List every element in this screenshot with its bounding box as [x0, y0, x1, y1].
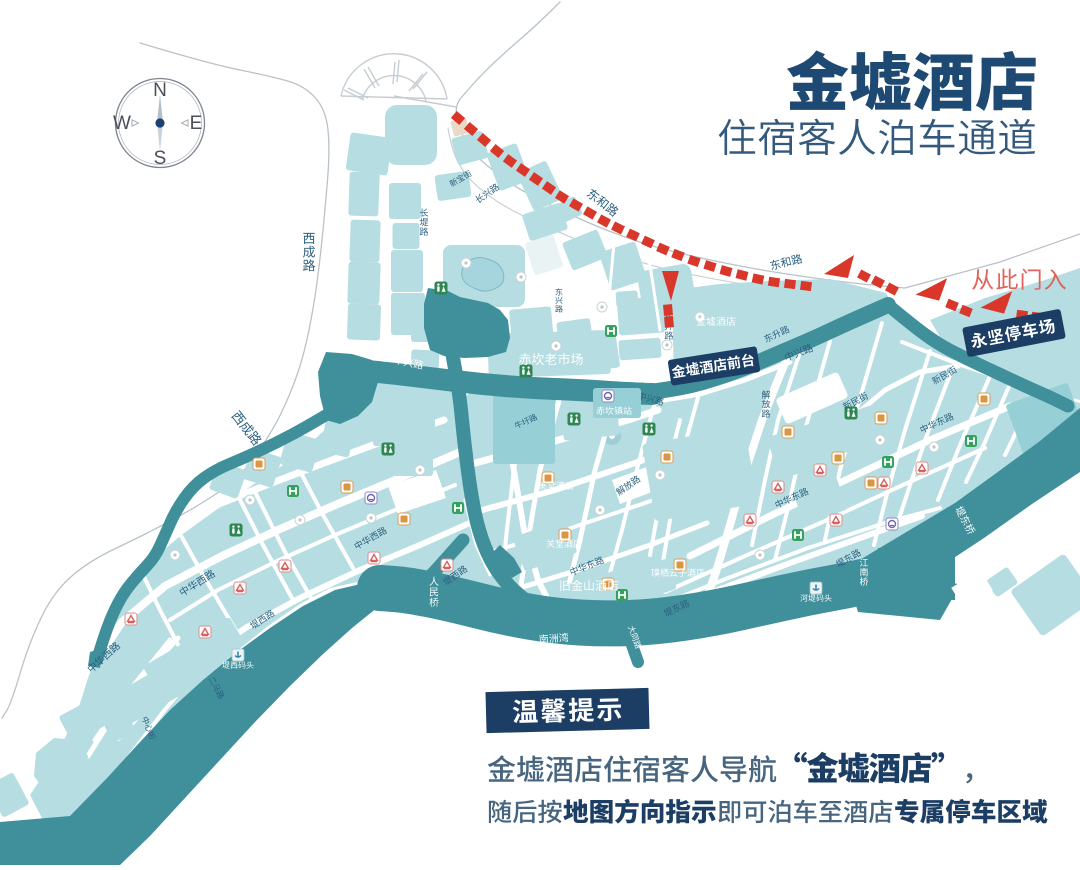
- svg-text:N: N: [153, 80, 167, 101]
- svg-text:E: E: [190, 113, 203, 134]
- svg-text:W: W: [113, 113, 131, 134]
- svg-text:S: S: [154, 148, 167, 169]
